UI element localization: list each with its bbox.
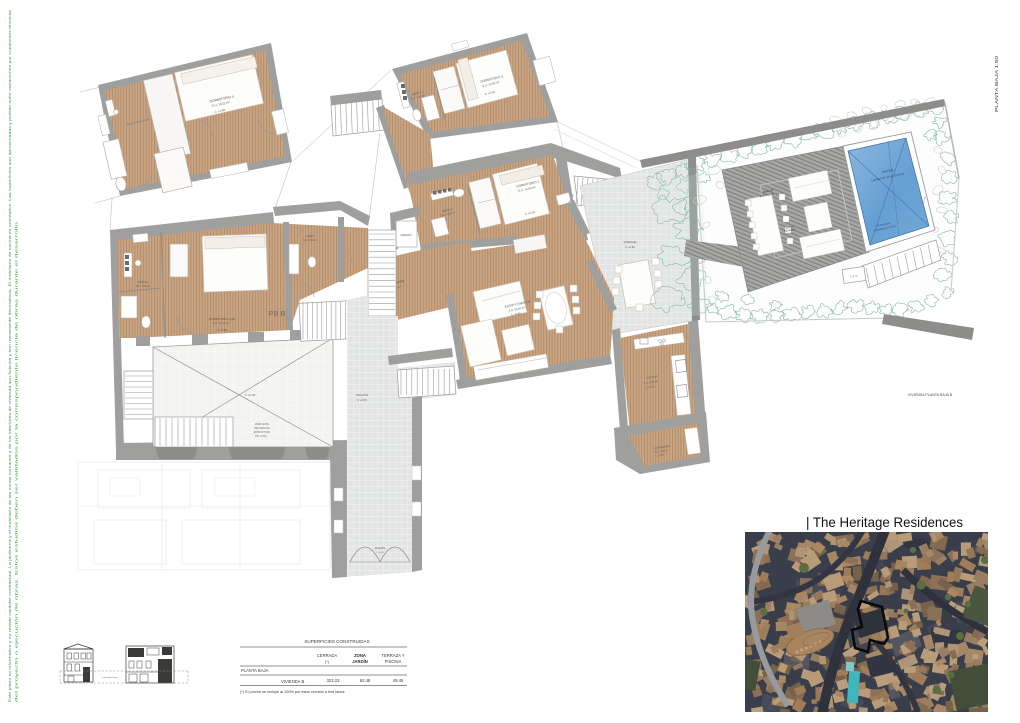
svg-text:PLANTA BAJA 1:50: PLANTA BAJA 1:50 xyxy=(994,56,1000,112)
svg-text:SUPERFICIES CONSTRUIDAS: SUPERFICIES CONSTRUIDAS xyxy=(304,639,369,644)
svg-text:JARDÍN: JARDÍN xyxy=(352,659,368,664)
svg-text:S.U. 7.00 m²: S.U. 7.00 m² xyxy=(136,285,150,288)
svg-text:VIVIENDA B: VIVIENDA B xyxy=(281,679,304,684)
svg-text:ZONA: ZONA xyxy=(354,653,366,658)
svg-text:VER DETALLE: VER DETALLE xyxy=(254,427,270,430)
svg-text:C +0.90: C +0.90 xyxy=(245,393,256,397)
svg-text:PORCHE: PORCHE xyxy=(624,240,637,244)
svg-text:PISCINA: PISCINA xyxy=(385,659,402,664)
svg-text:ZAGUÁN: ZAGUÁN xyxy=(356,393,368,397)
svg-text:| The Heritage Residences: | The Heritage Residences xyxy=(806,515,963,530)
svg-text:C +0.05: C +0.05 xyxy=(357,398,367,402)
svg-text:Este plano es informativo y no: Este plano es informativo y no reviste c… xyxy=(8,10,12,702)
svg-text:cota planta baja: cota planta baja xyxy=(102,676,118,679)
svg-text:DORMITORIO ppal: DORMITORIO ppal xyxy=(209,317,235,321)
svg-text:P.B. LOSA: P.B. LOSA xyxy=(255,435,267,438)
svg-text:PB B: PB B xyxy=(268,309,285,318)
svg-text:S.U. 4.20 m²: S.U. 4.20 m² xyxy=(303,239,317,242)
svg-text:MURO EXTE: MURO EXTE xyxy=(255,423,270,426)
svg-text:62.48: 62.48 xyxy=(360,678,371,683)
svg-text:(*) El porche se incluye al 10: (*) El porche se incluye al 100% por est… xyxy=(240,690,345,694)
svg-text:C +1.00: C +1.00 xyxy=(217,328,227,332)
svg-text:VIVIENDA PLANTA BAJA B: VIVIENDA PLANTA BAJA B xyxy=(908,393,953,397)
svg-text:TERRAZA Y: TERRAZA Y xyxy=(381,653,404,658)
svg-text:49.45: 49.45 xyxy=(393,678,404,683)
svg-text:ZAGUÁN: ZAGUÁN xyxy=(375,547,385,550)
svg-text:323.23: 323.23 xyxy=(327,678,340,683)
svg-text:C +0.60: C +0.60 xyxy=(625,245,635,249)
svg-text:PLANTA BAJA: PLANTA BAJA xyxy=(241,668,269,673)
svg-text:BAÑO p: BAÑO p xyxy=(138,279,149,284)
svg-text:ARMARIO: ARMARIO xyxy=(400,234,411,237)
svg-text:ESTRUCTURA: ESTRUCTURA xyxy=(254,431,271,434)
svg-text:ASEO: ASEO xyxy=(306,234,313,238)
svg-text:del proyecto o ejecución de ob: del proyecto o ejecución de obras. Estos… xyxy=(15,222,19,702)
svg-text:CERRADA: CERRADA xyxy=(317,653,338,658)
svg-text:S.U. 16.10 m²: S.U. 16.10 m² xyxy=(213,321,230,325)
svg-text:C +0.05: C +0.05 xyxy=(376,552,385,554)
